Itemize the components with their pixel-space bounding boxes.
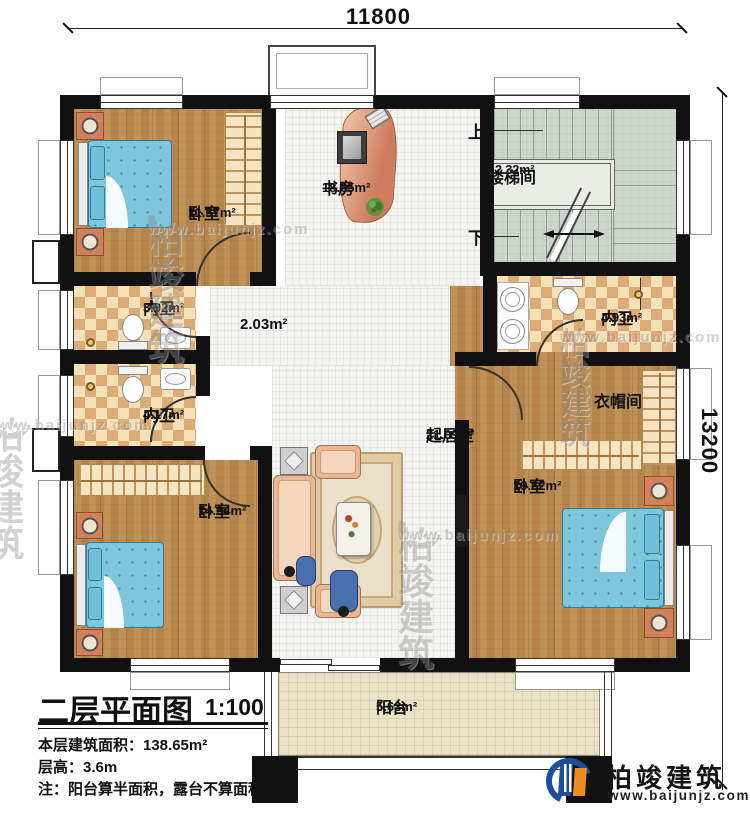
toilet-tank [553,278,583,287]
bed-headboard [78,142,88,226]
watermark-name: 柏竣建筑 [0,418,31,562]
title-underline [38,722,268,729]
stair-landing-line [613,185,676,186]
window [130,658,230,672]
wall [483,276,497,352]
window [270,95,374,109]
cloakroom-closet [520,440,642,470]
side-table [280,447,308,475]
wall [676,95,690,140]
person-head [338,606,349,617]
wall [258,460,272,658]
window-sill [515,672,615,690]
pillow [90,146,105,180]
window [676,368,690,460]
pillow [90,186,105,220]
window [676,545,690,640]
plant [366,198,384,216]
dimension-line-right [722,92,723,790]
cloakroom-closet [642,370,676,466]
side-table [280,586,308,614]
window [515,658,615,672]
room-area: 5.63m² [376,700,417,715]
dimension-width: 11800 [346,4,411,30]
title-area-line: 本层建筑面积：138.65m² [38,734,207,755]
sliding-door [280,659,332,665]
window-sill [38,480,60,575]
room-area: 4.93m² [601,311,642,326]
wall [580,95,690,109]
wall [183,95,270,109]
toilet-tank [118,341,148,350]
sliding-door [328,665,380,671]
wall [230,658,280,672]
wall [583,352,690,366]
room-area: 4.17m² [143,408,184,423]
bay-window [268,45,376,97]
sink [500,319,525,344]
nightstand [76,512,103,539]
stair-landing-line [613,243,676,244]
wall [60,658,130,672]
stair-down-label: 下 [468,224,485,249]
towel-ring [634,290,643,299]
title-height-line: 层高：3.6m [38,756,117,777]
room-area: 21.09m² [426,428,474,443]
nightstand [644,608,674,638]
floor-plan: 11800 13200 [0,0,750,821]
wall [250,446,272,460]
title-note-line: 注：阳台算半面积，露台不算面积 [38,778,263,799]
nightstand [76,112,104,140]
wall [60,350,210,364]
window [60,480,74,575]
towel-ring [86,338,95,347]
sink [160,368,191,390]
window-sill [38,140,60,235]
wall [374,95,494,109]
wall [196,336,210,396]
towel-ring [86,382,95,391]
room-area: 12.32m² [488,164,535,178]
stair-arrow-left [543,230,554,238]
room-area: 11.57m² [188,206,236,221]
tv [456,495,467,547]
window [60,140,74,235]
bed-headboard [664,510,674,606]
wall [676,460,690,545]
window [676,140,690,235]
flue-box [32,428,60,472]
wall [250,272,276,286]
plan-scale: 1:100 [205,694,264,721]
wall [60,95,74,140]
nightstand [76,228,104,256]
closet [78,464,205,496]
room-area: 3.92m² [143,301,184,316]
window [100,95,183,109]
wall [615,658,690,672]
room-area: 18.65m² [322,181,370,196]
window-sill [38,290,60,350]
wall [380,658,515,672]
window-sill [690,140,712,235]
balcony-railing-right [604,672,612,756]
stairwell-label-box: 楼梯间 12.32m² [487,163,611,206]
nightstand [76,629,103,656]
wall [480,262,690,276]
toilet [122,376,144,403]
wall [60,446,205,460]
coffee-table [336,502,371,556]
brand-website: www.baijunjz.com [608,788,750,803]
pillow [88,587,102,620]
pillow [88,548,102,581]
bed-headboard [76,544,86,626]
armchair [315,445,361,479]
pillow [644,514,660,554]
pillow [644,560,660,600]
window-sill [494,77,580,95]
stair-landing-line [613,170,676,171]
room-area: 14.94m² [198,504,246,519]
brand-logo-icon [543,752,599,806]
room-label: 衣帽间 [594,394,642,412]
sink [500,287,525,312]
stair-up-line [487,130,543,131]
window-sill [690,545,712,640]
balcony-railing-left [264,672,272,756]
window-sill [100,77,183,95]
stair-arrow-right [594,230,605,238]
wall [455,352,536,366]
nightstand [644,476,674,506]
stair-arrow-line [552,233,596,235]
window [60,375,74,437]
stair-landing-line [613,228,676,229]
toilet [122,314,144,341]
stair-up-label: 上 [468,118,485,143]
room-area: 19.62m² [513,479,561,494]
room-area: 2.03m² [240,316,288,333]
wall [262,109,276,286]
person-head [284,566,295,577]
flue-box [32,240,60,284]
person-figure [296,556,316,586]
toilet [557,288,579,315]
dimension-height: 13200 [696,408,722,474]
window [60,290,74,350]
toilet-tank [118,366,148,375]
wall [60,272,196,286]
computer-monitor [337,131,367,164]
wall [676,235,690,368]
window [494,95,580,109]
